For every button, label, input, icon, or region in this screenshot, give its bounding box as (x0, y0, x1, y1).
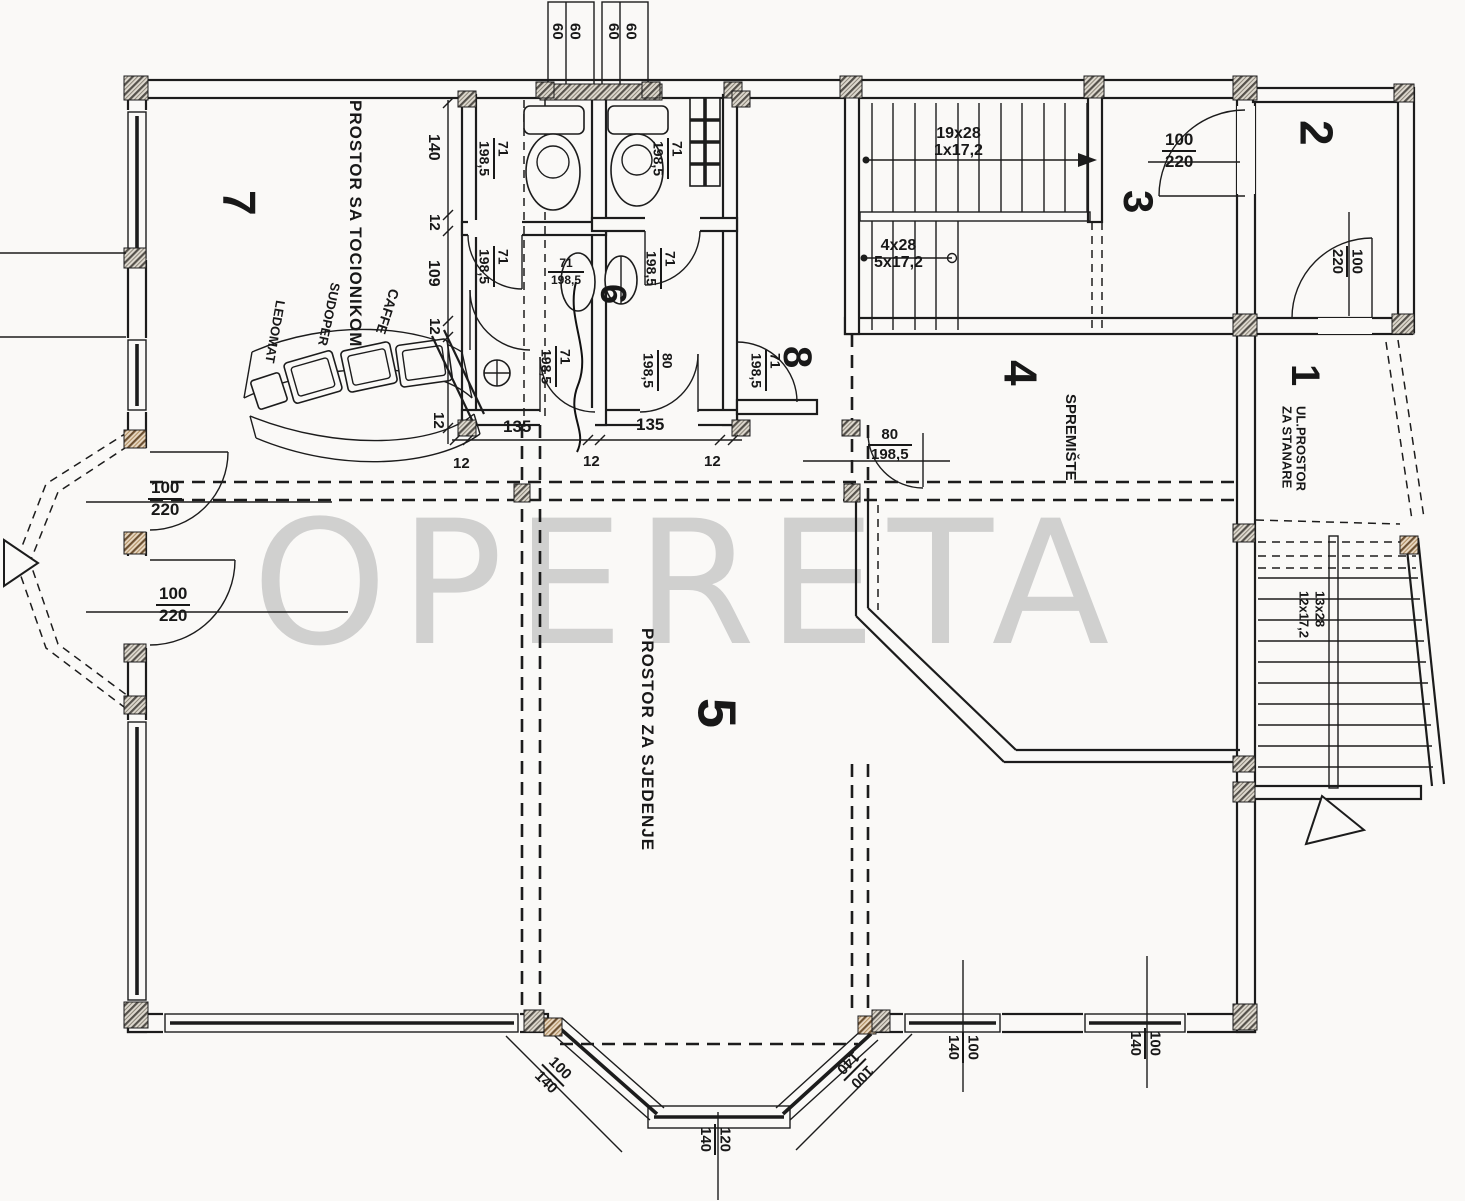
dim-140: 140 (424, 134, 441, 161)
stairs-main-lower-line1: 4x28 (874, 238, 923, 255)
door-label-100-220-room1: 100220 (1328, 246, 1366, 277)
outer-walls (128, 80, 1444, 1032)
stairs-main-upper-label: 19x281x17,2 (934, 126, 983, 160)
dim-12-a: 12 (426, 214, 442, 231)
room-4-label: SPREMIŠTE (1062, 394, 1078, 481)
window-label-num: 100 (1144, 1028, 1164, 1059)
window-label-den: 140 (1126, 1028, 1144, 1059)
door-label-den: 198,5 (640, 350, 657, 391)
door-label-num: 80 (657, 350, 676, 391)
stairs-main-upper-line1: 19x28 (934, 126, 983, 143)
door-label-71-wc4: 71198,5 (643, 248, 678, 289)
dim-135-b: 135 (636, 416, 664, 434)
room-1-label: UL.PROSTORZA STANARE (1280, 406, 1307, 491)
stairs-main-upper-line2: 1x17,2 (934, 143, 983, 160)
door-label-num: 100 (1162, 130, 1196, 152)
window-label-den: 60 (548, 20, 566, 43)
window-label-num: 100 (962, 1032, 982, 1063)
dashed-lines (16, 100, 1237, 1044)
door-label-100-220-left1: 100220 (148, 478, 182, 520)
room-1-number: 1 (1284, 364, 1326, 386)
entrance-arrows (4, 540, 1364, 844)
door-label-71-wc3: 71198,5 (476, 246, 511, 287)
door-label-den: 220 (1162, 152, 1196, 172)
door-label-num: 80 (868, 426, 912, 446)
stairs-main-lower-line2: 5x17,2 (874, 255, 923, 272)
vent-label-60-1: 6060 (548, 20, 584, 43)
window-label-num: 120 (714, 1124, 734, 1155)
room-3-number: 3 (1116, 190, 1160, 213)
door-label-den: 220 (148, 500, 182, 520)
door-label-71-wc2: 71198,5 (650, 138, 685, 179)
window-label-num: 60 (566, 20, 584, 43)
window-label-den: 140 (944, 1032, 962, 1063)
vent-label-60-2: 6060 (604, 20, 640, 43)
door-label-num: 100 (156, 584, 190, 606)
floor-plan: OPERETA .w{fill:none;stroke:#1c1c1c;stro… (0, 0, 1465, 1201)
door-label-den: 198,5 (748, 350, 765, 391)
door-label-num: 100 (148, 478, 182, 500)
room-7-label: PROSTOR SA TOCIONIKOM (346, 100, 364, 347)
dim-12-b: 12 (426, 318, 442, 335)
floorplan-linework: .w{fill:none;stroke:#1c1c1c;stroke-width… (0, 0, 1465, 1201)
door-label-71-sink: 71198,5 (548, 256, 584, 287)
door-label-71-room8: 71198,5 (748, 350, 783, 391)
window-label-120-140: 120140 (696, 1124, 734, 1155)
door-label-den: 198,5 (538, 346, 555, 387)
door-label-80-washroom: 80198,5 (640, 350, 675, 391)
room-5-label: PROSTOR ZA SJEDENJE (638, 628, 656, 851)
stairs-entry-label: 13x2812x17,2 (1296, 588, 1327, 641)
door-label-num: 71 (555, 346, 574, 387)
room-4-number: 4 (996, 360, 1044, 386)
door-label-100-220-room2: 100220 (1162, 130, 1196, 172)
room-6-number: 6 (594, 284, 632, 304)
door-label-den: 198,5 (643, 248, 660, 289)
room-7-number: 7 (215, 190, 263, 216)
door-label-num: 71 (493, 138, 512, 179)
door-label-den: 198,5 (650, 138, 667, 179)
stairs-entry (1258, 536, 1433, 788)
door-label-den: 220 (156, 606, 190, 626)
room4-walls (856, 500, 1240, 762)
door-label-71-mid: 71198,5 (538, 346, 573, 387)
dim-12-d: 12 (453, 456, 470, 472)
room-1-label-line2: ZA STANARE (1280, 406, 1294, 491)
door-label-num: 71 (493, 246, 512, 287)
room-2-number: 2 (1292, 120, 1340, 146)
door-label-num: 71 (765, 350, 784, 391)
door-label-num: 100 (1346, 246, 1366, 277)
window-label-den: 140 (696, 1124, 714, 1155)
dim-12-e: 12 (583, 454, 600, 470)
wall-pillars (124, 76, 1418, 1036)
stairs-entry-line1: 13x28 (1312, 588, 1328, 641)
door-label-71-wc1: 71198,5 (476, 138, 511, 179)
door-label-den: 198,5 (548, 273, 584, 288)
window-label-100-140-b: 100140 (1126, 1028, 1164, 1059)
door-label-80-room4: 80198,5 (868, 426, 912, 464)
stairs-main-lower-label: 4x285x17,2 (874, 238, 923, 272)
window-label-100-140-a: 100140 (944, 1032, 982, 1063)
window-label-den: 60 (604, 20, 622, 43)
door-label-den: 220 (1328, 246, 1346, 277)
dim-12-f: 12 (704, 454, 721, 470)
door-label-num: 71 (548, 256, 584, 273)
door-label-den: 198,5 (476, 138, 493, 179)
room-5-number: 5 (688, 698, 745, 728)
door-label-num: 71 (667, 138, 686, 179)
stairs-entry-line2: 12x17,2 (1296, 588, 1312, 641)
dim-12-c: 12 (430, 412, 446, 429)
dim-109: 109 (424, 260, 441, 287)
door-label-den: 198,5 (476, 246, 493, 287)
room-1-label-line1: UL.PROSTOR (1294, 406, 1308, 491)
dim-135-a: 135 (503, 418, 531, 436)
door-label-num: 71 (660, 248, 679, 289)
door-label-100-220-left2: 100220 (156, 584, 190, 626)
door-label-den: 198,5 (868, 446, 912, 464)
window-label-num: 60 (622, 20, 640, 43)
